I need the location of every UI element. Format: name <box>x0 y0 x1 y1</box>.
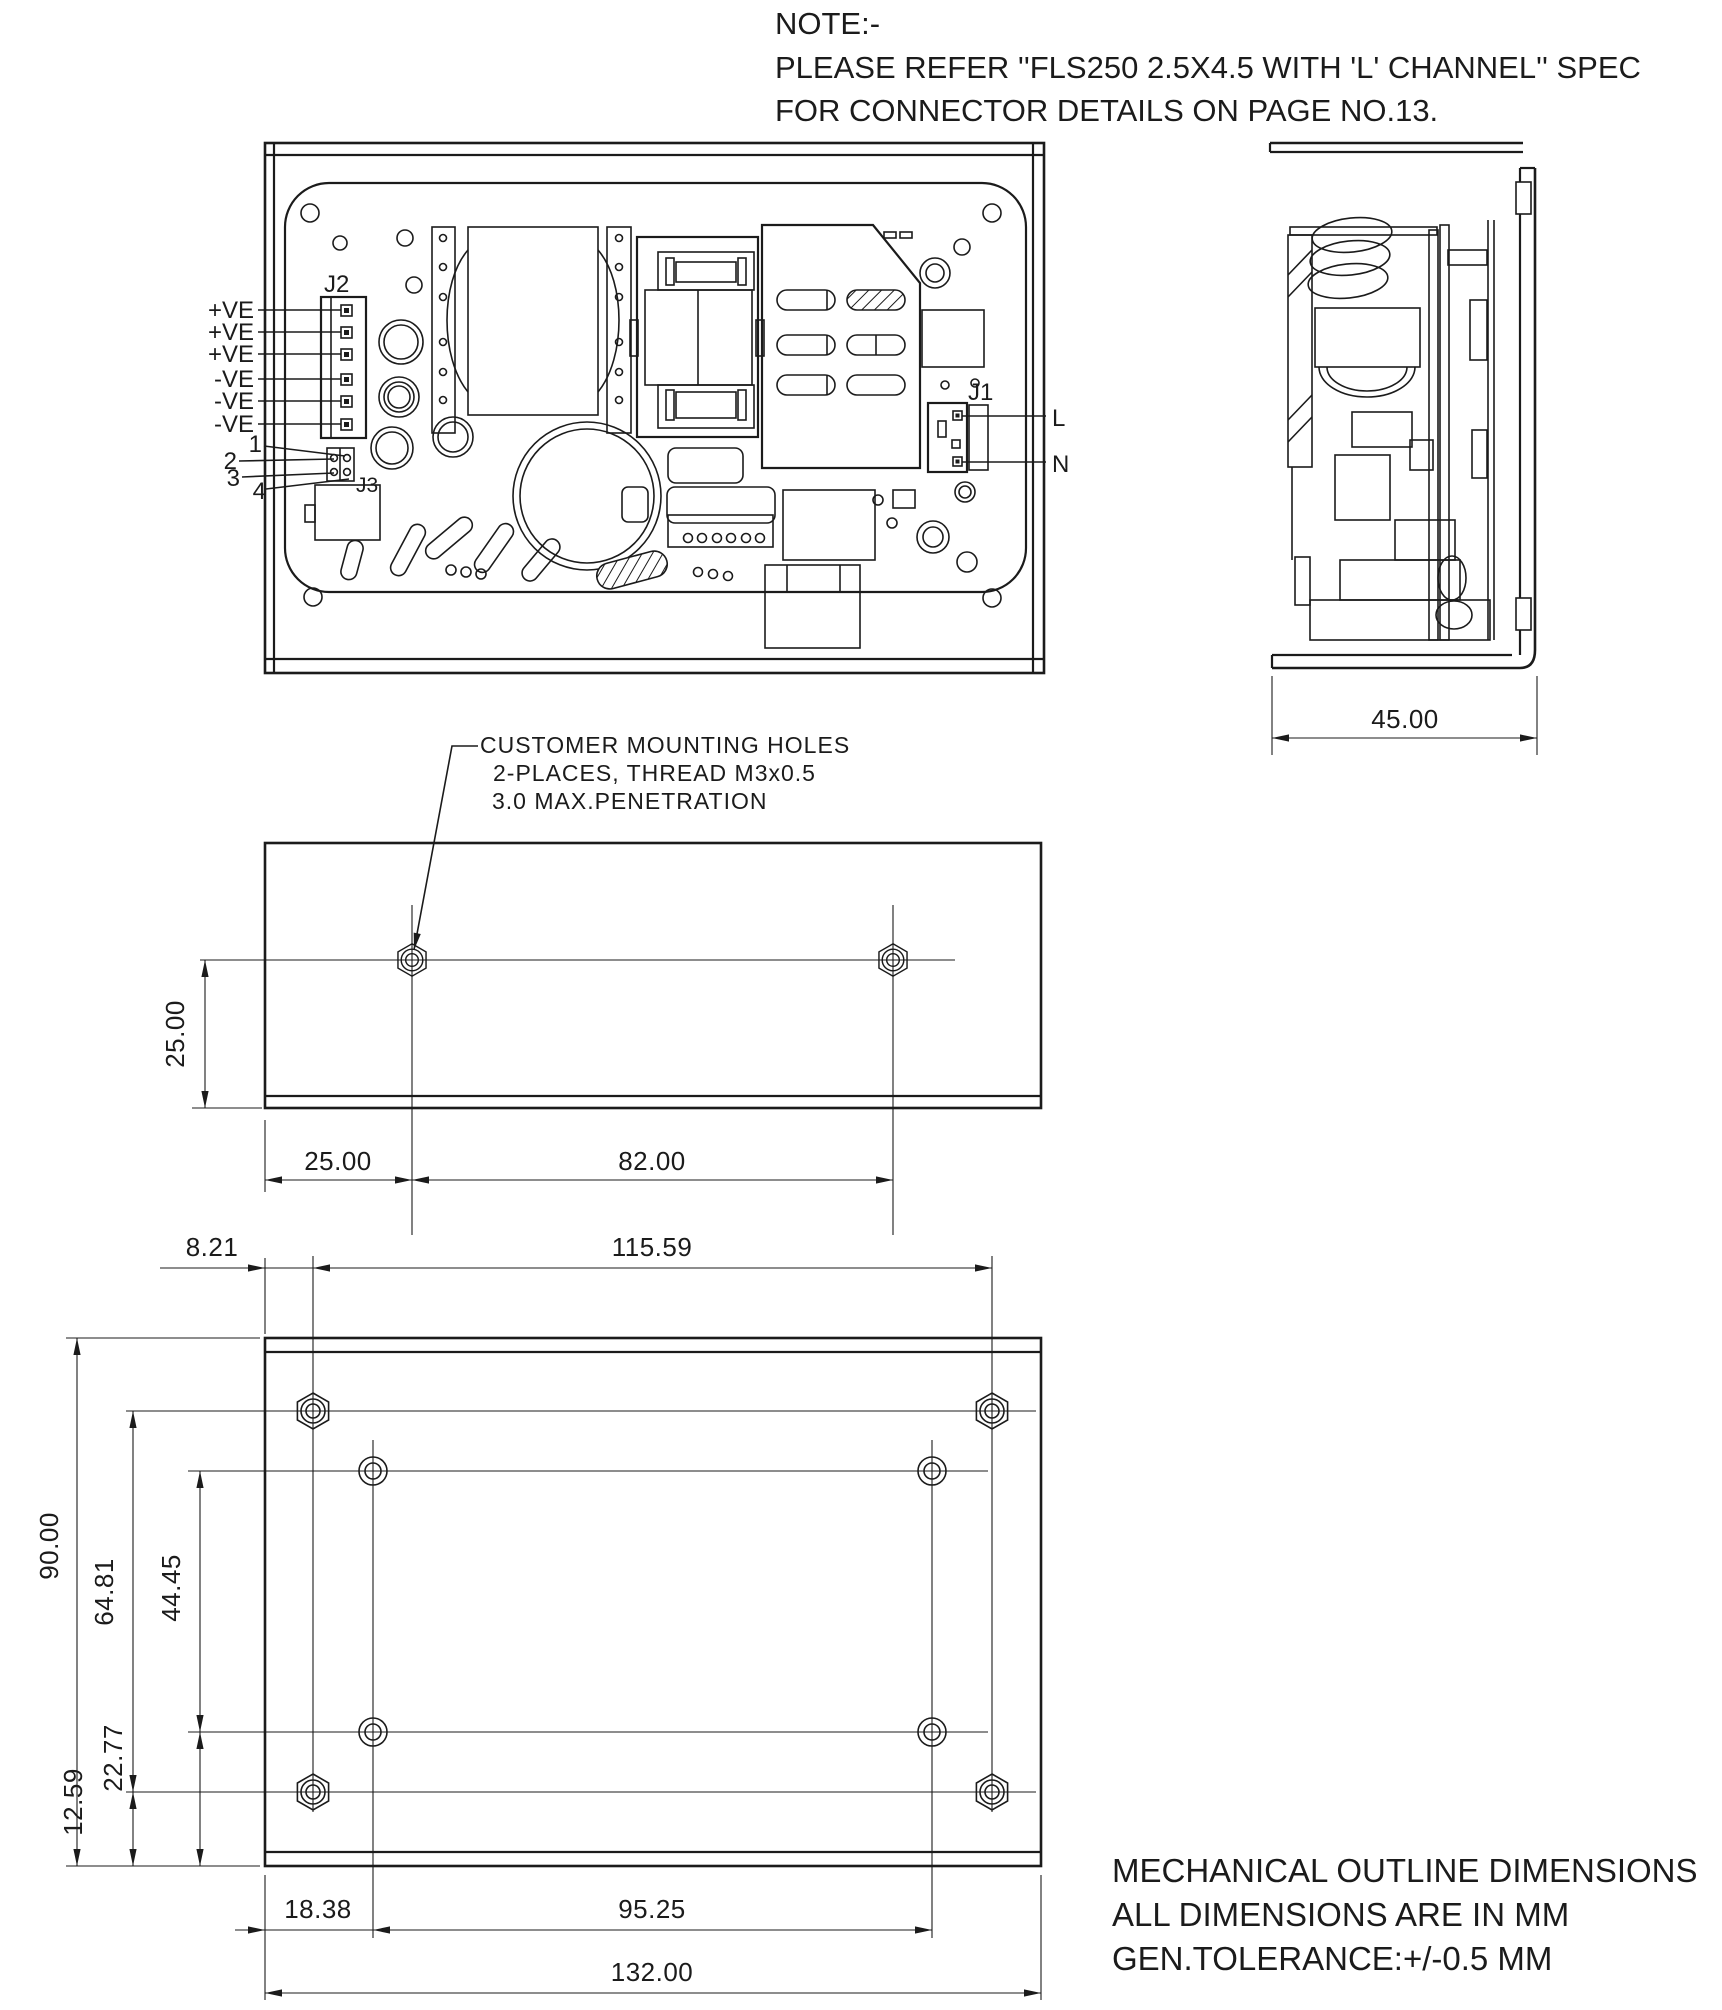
dim-side-depth: 45.00 <box>1272 676 1537 755</box>
top-view: J2 +VE +VE +VE -VE -VE -VE 1 2 3 4 J3 <box>208 143 1069 673</box>
transformer <box>432 227 631 433</box>
aux-connector: 1 2 3 4 J3 <box>224 431 379 505</box>
j2-pins <box>341 305 352 430</box>
dim-base-top: 8.21 115.59 <box>160 1232 992 1334</box>
heatsink <box>630 237 764 437</box>
axial-components <box>339 514 732 592</box>
base-outline <box>265 1338 1041 1866</box>
dim-95-25: 95.25 <box>618 1894 686 1924</box>
mounting-callout: CUSTOMER MOUNTING HOLES 2-PLACES, THREAD… <box>410 732 850 951</box>
side-view: 45.00 <box>1270 143 1537 755</box>
pin-label-pve3: +VE <box>208 341 254 368</box>
dim-front-height: 25.00 <box>160 960 262 1108</box>
front-outline <box>265 843 1041 1108</box>
front-view: CUSTOMER MOUNTING HOLES 2-PLACES, THREAD… <box>160 732 1041 1235</box>
line-terminal-label: L <box>1052 405 1065 432</box>
fuse-block <box>922 310 984 367</box>
dim-90: 90.00 <box>34 1512 64 1580</box>
side-internals <box>1288 214 1494 640</box>
dim-44-45: 44.45 <box>156 1554 186 1622</box>
bottom-components <box>622 448 975 648</box>
pcb-outline <box>285 183 1026 592</box>
transformer-pins <box>440 235 623 404</box>
note-line-2: PLEASE REFER ''FLS250 2.5X4.5 WITH 'L' C… <box>775 50 1641 85</box>
aux-pin-3: 3 <box>227 465 240 492</box>
aux-pin-1: 1 <box>249 431 262 458</box>
dim-132: 132.00 <box>611 1957 694 1987</box>
j1-connector: J1 L N <box>928 379 1069 478</box>
dim-82: 82.00 <box>618 1146 686 1176</box>
dim-64-81: 64.81 <box>89 1558 119 1626</box>
dim-12-59: 12.59 <box>58 1768 88 1836</box>
j2-label: J2 <box>324 271 349 298</box>
j1-label: J1 <box>968 379 993 406</box>
channel-clip-top <box>1516 182 1531 214</box>
footer-line-1: MECHANICAL OUTLINE DIMENSIONS <box>1112 1852 1698 1889</box>
footer-line-2: ALL DIMENSIONS ARE IN MM <box>1112 1896 1569 1933</box>
mechanical-outline-drawing: NOTE:- PLEASE REFER ''FLS250 2.5X4.5 WIT… <box>0 0 1722 2010</box>
dim-18-38: 18.38 <box>284 1894 352 1924</box>
note-block: NOTE:- PLEASE REFER ''FLS250 2.5X4.5 WIT… <box>775 6 1641 128</box>
base-centerlines <box>126 1256 1036 1938</box>
dim-front-holes: 25.00 82.00 <box>265 1120 893 1192</box>
footer-line-3: GEN.TOLERANCE:+/-0.5 MM <box>1112 1940 1552 1977</box>
drawing-sheet: NOTE:- PLEASE REFER ''FLS250 2.5X4.5 WIT… <box>0 0 1722 2010</box>
dim-22-77: 22.77 <box>98 1724 128 1792</box>
neutral-terminal-label: N <box>1052 451 1069 478</box>
dim-25-vert: 25.00 <box>160 1000 190 1068</box>
callout-line-2: 2-PLACES, THREAD M3x0.5 <box>493 760 816 786</box>
dim-8-21: 8.21 <box>186 1232 239 1262</box>
callout-line-1: CUSTOMER MOUNTING HOLES <box>480 732 850 758</box>
dim-25-horiz: 25.00 <box>304 1146 372 1176</box>
base-view: 8.21 115.59 90.00 64.81 44.45 22.77 12.5… <box>34 1232 1041 2000</box>
note-line-3: FOR CONNECTOR DETAILS ON PAGE NO.13. <box>775 93 1438 128</box>
hatched-louver-slot <box>847 290 905 310</box>
capacitors <box>371 320 661 570</box>
callout-line-3: 3.0 MAX.PENETRATION <box>492 788 767 814</box>
dim-base-left: 90.00 64.81 44.45 22.77 12.59 <box>34 1338 260 1866</box>
note-line-1: NOTE:- <box>775 6 880 41</box>
aux-pin-4: 4 <box>253 478 266 505</box>
dim-115-59: 115.59 <box>612 1232 693 1262</box>
footer-block: MECHANICAL OUTLINE DIMENSIONS ALL DIMENS… <box>1112 1852 1698 1977</box>
louver-cover <box>762 225 920 468</box>
channel-clip-bottom <box>1516 598 1531 630</box>
dim-45: 45.00 <box>1371 704 1439 734</box>
dim-base-bottom: 18.38 95.25 132.00 <box>235 1875 1041 2000</box>
